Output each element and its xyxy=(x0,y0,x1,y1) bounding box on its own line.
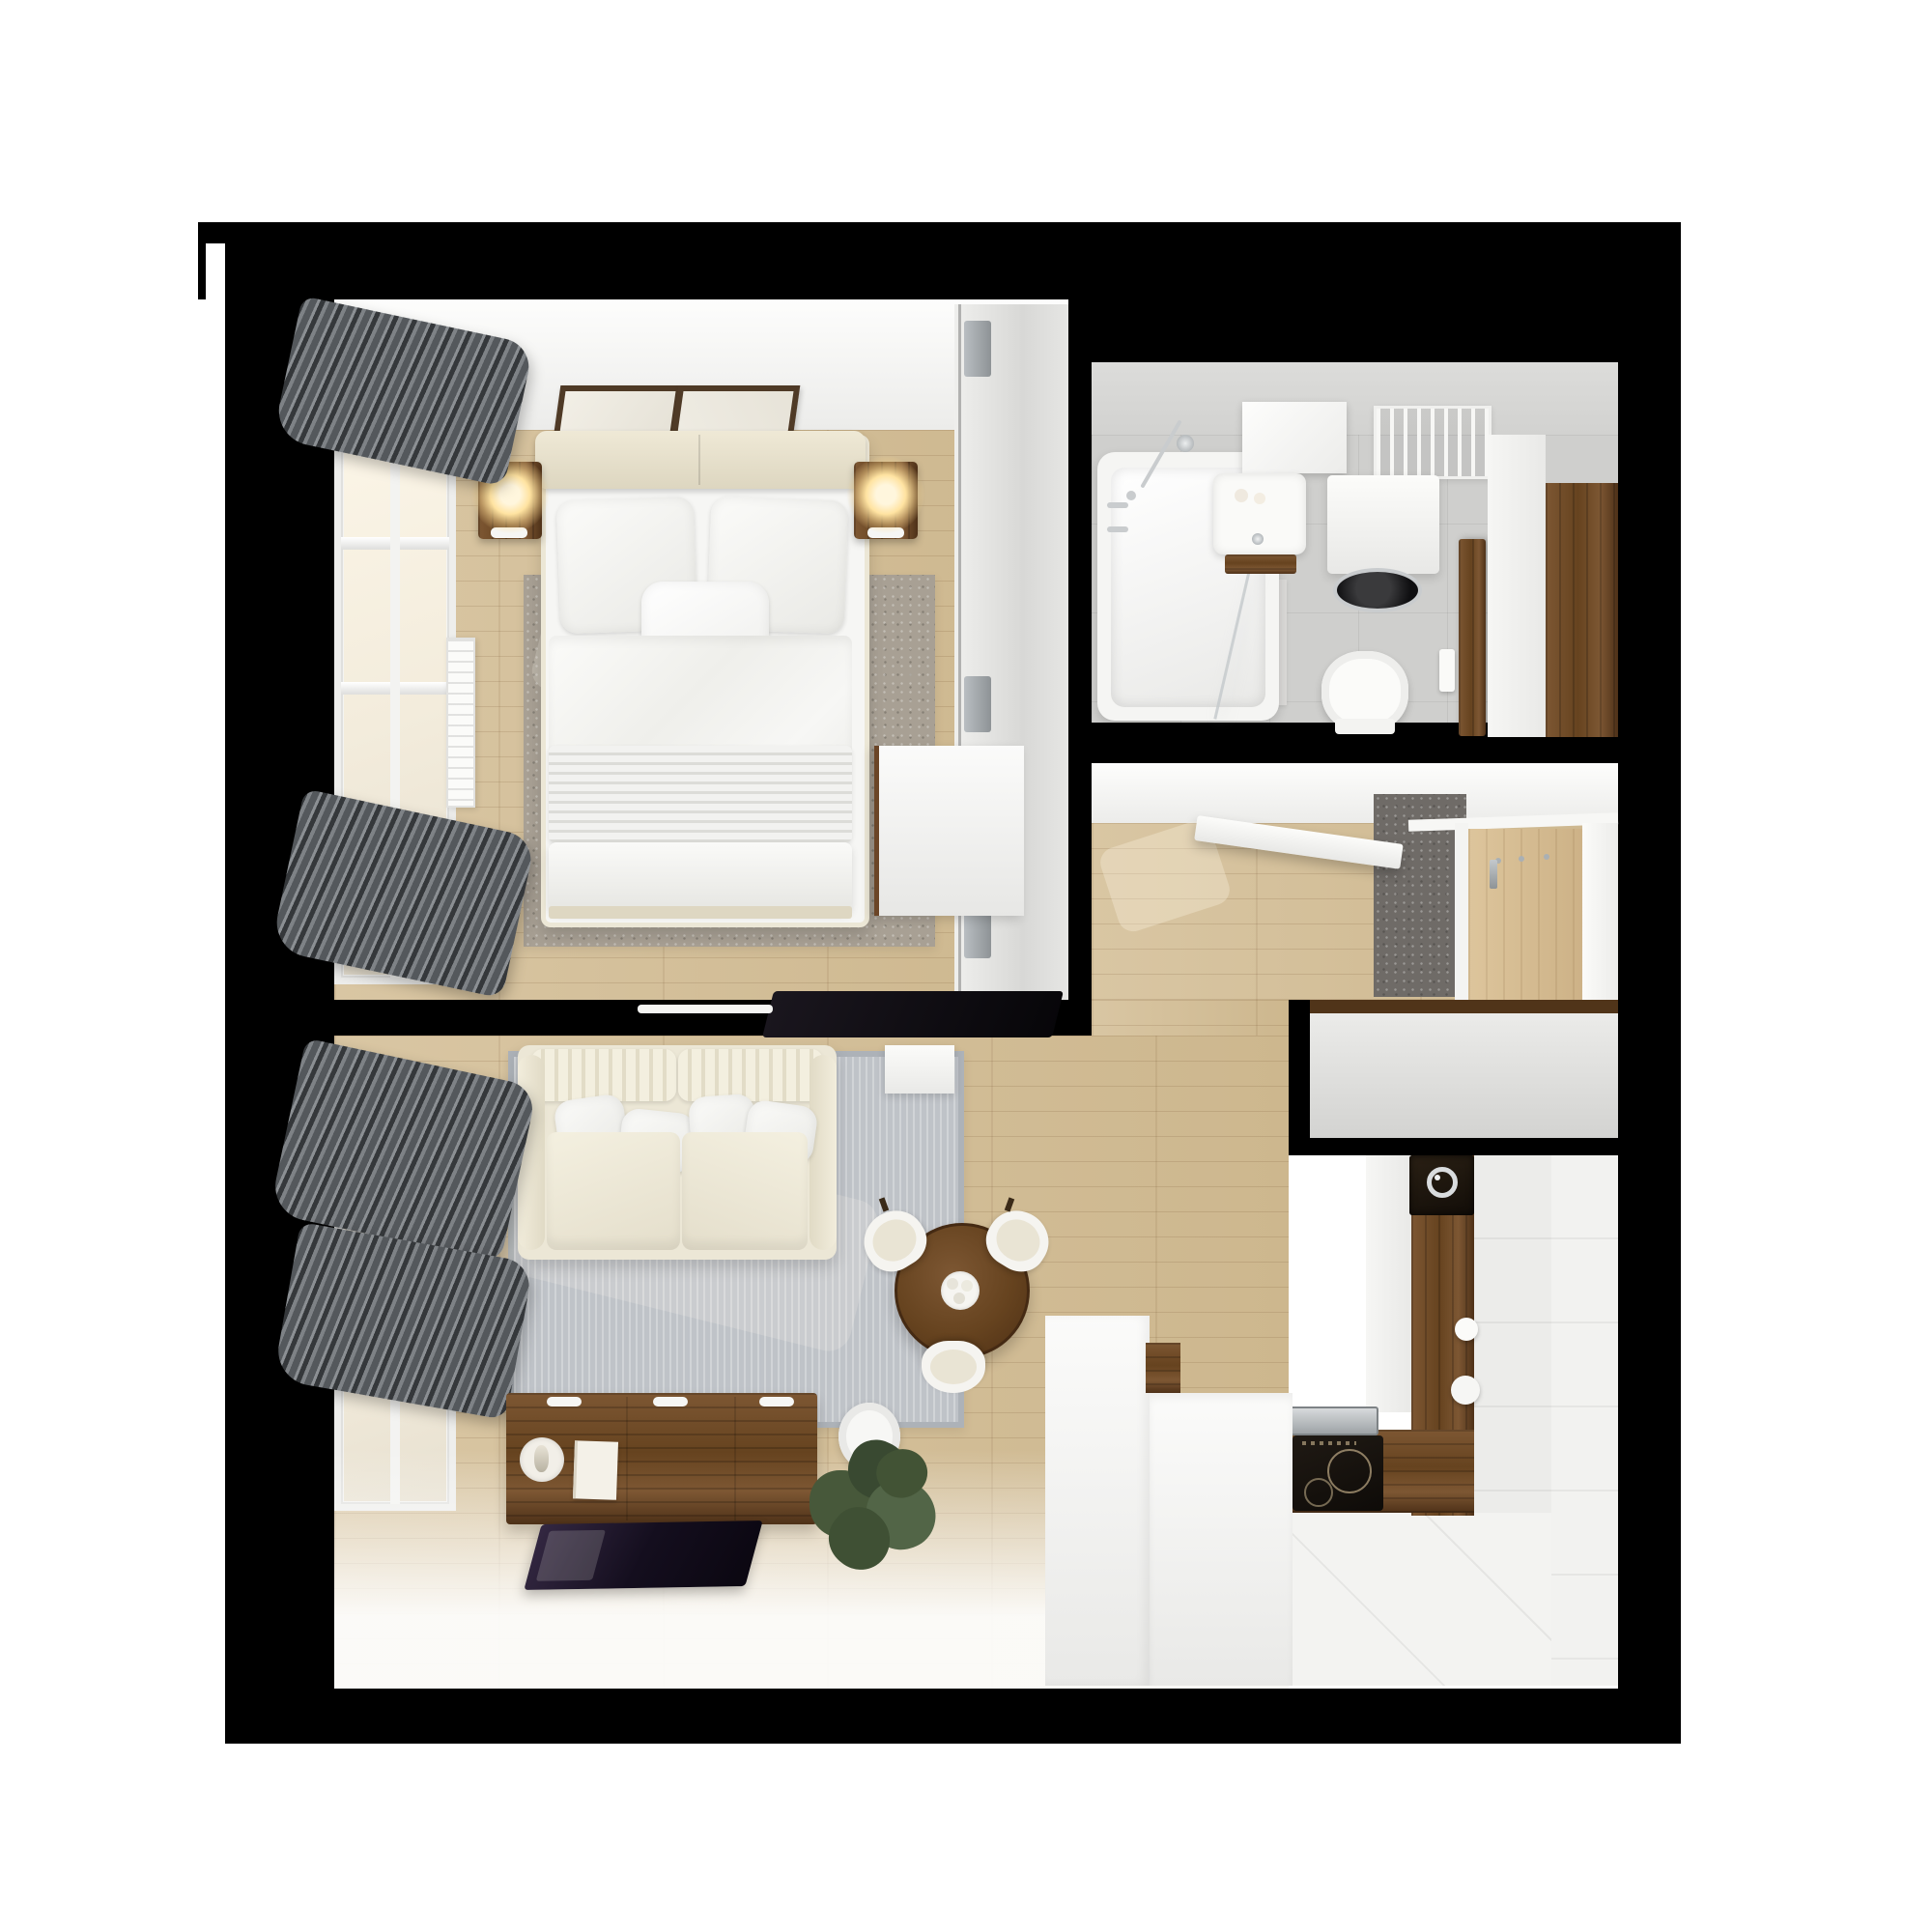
kitchen-canister xyxy=(1455,1318,1478,1341)
sideboard-handle xyxy=(547,1397,582,1406)
flush-plate xyxy=(1439,649,1455,692)
coat-nook-trim-right xyxy=(1582,823,1618,1000)
basin-faucet xyxy=(1252,533,1264,545)
closet-top-edge xyxy=(1310,1000,1618,1013)
side-table xyxy=(885,1045,954,1094)
bathroom-door-open xyxy=(1459,539,1486,736)
wall-top xyxy=(198,222,1681,299)
bed-headboard xyxy=(535,431,866,489)
kitchen-floor-tiles xyxy=(1293,1513,1551,1686)
cooktop-ring xyxy=(1304,1478,1333,1507)
basin-soap xyxy=(1254,493,1265,504)
sofa-seat-cushion xyxy=(547,1132,680,1250)
bed-duvet-fold xyxy=(549,842,852,912)
wall-bathroom-top xyxy=(1092,299,1618,362)
coat-hook xyxy=(1544,854,1549,860)
living-tv xyxy=(524,1520,762,1590)
kitchen-upper-strip xyxy=(1366,1155,1411,1412)
bedside-lamp-right xyxy=(847,456,924,533)
bathroom-mirror xyxy=(1242,402,1347,473)
sideboard-decor-bottle xyxy=(534,1445,549,1472)
wardrobe-bracket xyxy=(964,321,991,377)
sofa-seat-cushion xyxy=(682,1132,808,1250)
closet-unit xyxy=(1310,1013,1618,1138)
tv-reflection xyxy=(536,1530,606,1581)
toilet-cistern xyxy=(1335,719,1395,734)
headboard-seam xyxy=(698,435,700,485)
sideboard-handle xyxy=(759,1397,794,1406)
potted-plant xyxy=(810,1441,935,1572)
sideboard-seam xyxy=(626,1397,628,1520)
wall-closet-bottom xyxy=(1289,1138,1618,1155)
chair-seat xyxy=(865,1211,923,1269)
bath-faucet xyxy=(1107,526,1128,532)
wall-divider-bedroom-bathroom xyxy=(1068,299,1092,1000)
sofa-armrest-right xyxy=(810,1055,837,1250)
shower-head xyxy=(1177,435,1194,452)
sideboard-seam xyxy=(734,1397,736,1520)
cup xyxy=(947,1278,958,1290)
sofa-back-cushion xyxy=(678,1049,823,1101)
bedroom-dresser xyxy=(874,746,1024,916)
passage-floor xyxy=(1092,1000,1289,1036)
bedroom-radiator xyxy=(446,638,475,808)
entry-niche-wall xyxy=(1488,435,1546,737)
wall-left xyxy=(225,222,334,1744)
bathroom-wall-face xyxy=(1092,362,1618,435)
peninsula-walnut-inset xyxy=(1146,1343,1180,1393)
entry-door-panel xyxy=(1546,483,1618,737)
washing-machine xyxy=(1327,475,1439,574)
kitchen-peninsula-return xyxy=(1150,1393,1293,1686)
wall-bottom xyxy=(225,1689,1681,1744)
bathtub-drain xyxy=(1126,491,1136,500)
tableware xyxy=(941,1271,980,1310)
bedroom-tv xyxy=(762,991,1064,1037)
cooktop-controls xyxy=(1302,1441,1356,1445)
bath-faucet xyxy=(1107,502,1128,508)
bedroom-tv-soundbar xyxy=(638,1005,773,1013)
sink-faucet xyxy=(1427,1167,1458,1198)
towel-radiator xyxy=(1374,406,1492,479)
washing-machine-drum xyxy=(1333,568,1422,612)
kitchen-cabinet-band xyxy=(1474,1155,1551,1516)
sideboard-book xyxy=(573,1440,618,1500)
bed-footboard xyxy=(549,906,852,919)
washbasin-shelf xyxy=(1225,554,1296,574)
sofa-back-cushion xyxy=(531,1049,676,1101)
kitchen-sink xyxy=(1409,1155,1474,1215)
basin-soap xyxy=(1235,489,1248,502)
sink-faucet-dot xyxy=(1435,1175,1440,1180)
dining-chair-bottom xyxy=(922,1341,985,1393)
chair-seat xyxy=(930,1350,977,1384)
chair-seat xyxy=(988,1211,1047,1269)
hallway-wall-face xyxy=(1092,763,1618,823)
wall-closet-left xyxy=(1289,1000,1310,1155)
coat-hanger xyxy=(1490,860,1497,889)
coat-nook-trim-left xyxy=(1455,823,1468,1000)
washbasin xyxy=(1213,473,1306,554)
wardrobe-bracket xyxy=(964,676,991,732)
cup xyxy=(953,1293,965,1304)
kitchen-canister xyxy=(1451,1376,1480,1405)
sideboard-handle xyxy=(653,1397,688,1406)
kitchen-wall-band xyxy=(1551,1155,1618,1686)
kitchen-cooktop xyxy=(1293,1435,1383,1511)
coat-panel xyxy=(1468,829,1582,1000)
kitchen-peninsula xyxy=(1045,1316,1150,1686)
coat-hook xyxy=(1519,856,1524,862)
wall-right xyxy=(1618,222,1681,1744)
cup xyxy=(961,1280,973,1292)
floorplan-render xyxy=(0,0,1932,1932)
wall-top-notch xyxy=(206,243,225,299)
bed-blanket xyxy=(549,746,852,842)
cooktop-ring xyxy=(1327,1449,1372,1493)
